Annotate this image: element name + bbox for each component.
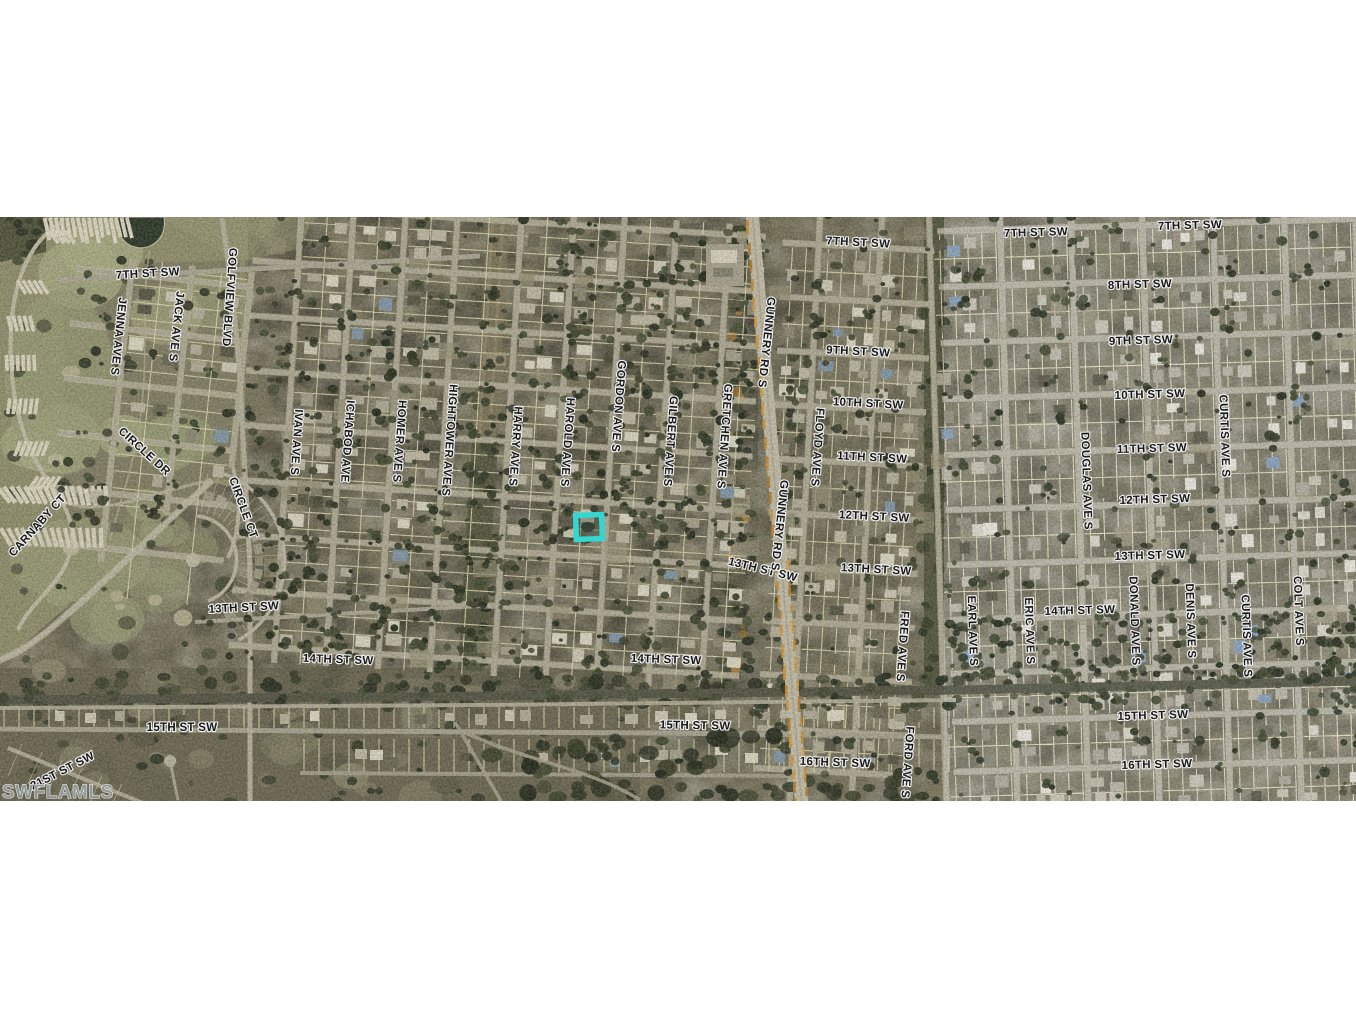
svg-text:SWFLAMLS: SWFLAMLS <box>2 782 114 803</box>
